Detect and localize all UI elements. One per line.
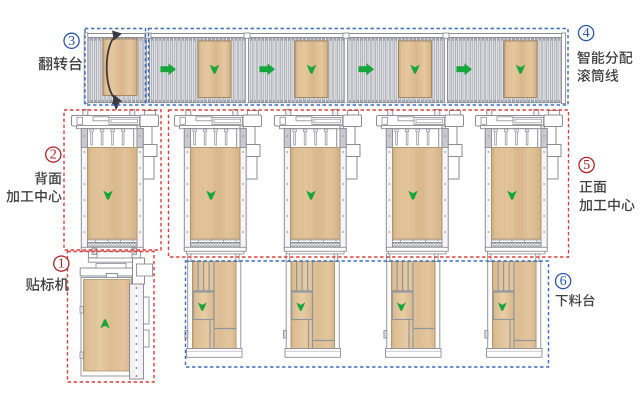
svg-text:1: 1 [58, 256, 65, 272]
svg-text:2: 2 [50, 147, 57, 163]
svg-text:5: 5 [583, 157, 590, 173]
svg-text:4: 4 [583, 25, 590, 41]
svg-text:6: 6 [560, 273, 567, 289]
svg-text:3: 3 [68, 33, 75, 49]
